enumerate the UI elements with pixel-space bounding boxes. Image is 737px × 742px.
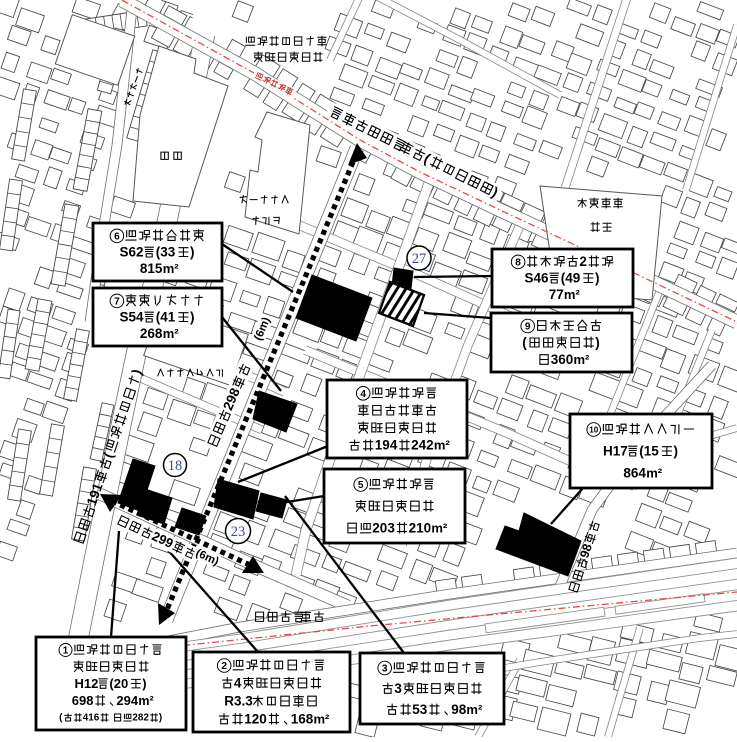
svg-text:m²: m² xyxy=(163,261,180,276)
svg-text:): ) xyxy=(595,270,600,285)
svg-text:(15: (15 xyxy=(639,443,659,458)
svg-text:(49: (49 xyxy=(561,270,581,285)
svg-text:m²: m² xyxy=(138,694,153,708)
svg-text:(20: (20 xyxy=(109,676,128,691)
svg-text:9: 9 xyxy=(525,322,531,333)
svg-text:4: 4 xyxy=(360,389,366,400)
svg-text:m²: m² xyxy=(574,352,591,367)
svg-text:S62: S62 xyxy=(120,244,144,259)
svg-text:m²: m² xyxy=(431,520,448,535)
svg-text:7: 7 xyxy=(114,297,120,308)
svg-text:120: 120 xyxy=(244,711,267,726)
svg-text:): ) xyxy=(674,443,679,458)
svg-text:H12: H12 xyxy=(75,676,99,691)
svg-text:): ) xyxy=(595,335,600,350)
svg-text:210: 210 xyxy=(409,520,432,535)
svg-text:294: 294 xyxy=(116,693,138,708)
svg-text:m²: m² xyxy=(314,711,331,726)
svg-text:3: 3 xyxy=(382,664,388,675)
svg-text:m²: m² xyxy=(163,326,180,341)
svg-text:3: 3 xyxy=(394,681,402,696)
svg-text:282: 282 xyxy=(132,713,149,724)
svg-text:242: 242 xyxy=(411,438,434,453)
svg-text:194: 194 xyxy=(375,438,398,453)
svg-text:268: 268 xyxy=(140,326,163,341)
svg-text:27: 27 xyxy=(412,251,427,267)
svg-text:m²: m² xyxy=(564,287,581,302)
svg-text:S54: S54 xyxy=(120,309,145,324)
svg-text:1: 1 xyxy=(63,646,69,657)
svg-text:m²: m² xyxy=(434,438,451,453)
svg-text:2: 2 xyxy=(579,254,587,269)
svg-text:23: 23 xyxy=(231,524,246,540)
svg-text:): ) xyxy=(190,309,195,324)
svg-text:698: 698 xyxy=(72,693,94,708)
svg-text:5: 5 xyxy=(358,480,364,491)
svg-text:m²: m² xyxy=(646,465,663,480)
svg-text:203: 203 xyxy=(372,520,395,535)
svg-text:360: 360 xyxy=(551,352,574,367)
svg-text:18: 18 xyxy=(168,458,183,474)
svg-text:53: 53 xyxy=(412,702,428,717)
svg-text:4: 4 xyxy=(234,675,242,690)
svg-text:77: 77 xyxy=(549,287,564,302)
svg-text:(41: (41 xyxy=(156,309,176,324)
svg-text:(33: (33 xyxy=(156,244,176,259)
svg-text:): ) xyxy=(142,676,146,691)
svg-text:815: 815 xyxy=(140,261,163,276)
svg-text:(: ( xyxy=(522,335,527,350)
svg-text:864: 864 xyxy=(623,465,646,480)
svg-text:8: 8 xyxy=(515,258,521,269)
svg-text:10: 10 xyxy=(589,425,599,434)
svg-text:168: 168 xyxy=(291,711,314,726)
svg-text:): ) xyxy=(190,244,195,259)
svg-text:R3.3: R3.3 xyxy=(224,693,253,708)
svg-text:S46: S46 xyxy=(525,270,550,285)
svg-text:6: 6 xyxy=(114,232,120,243)
svg-text:): ) xyxy=(159,713,162,724)
svg-text:98: 98 xyxy=(451,702,467,717)
svg-text:416: 416 xyxy=(83,713,100,724)
svg-text:2: 2 xyxy=(221,661,227,672)
svg-text:m²: m² xyxy=(466,702,483,717)
svg-text:H17: H17 xyxy=(603,443,628,458)
